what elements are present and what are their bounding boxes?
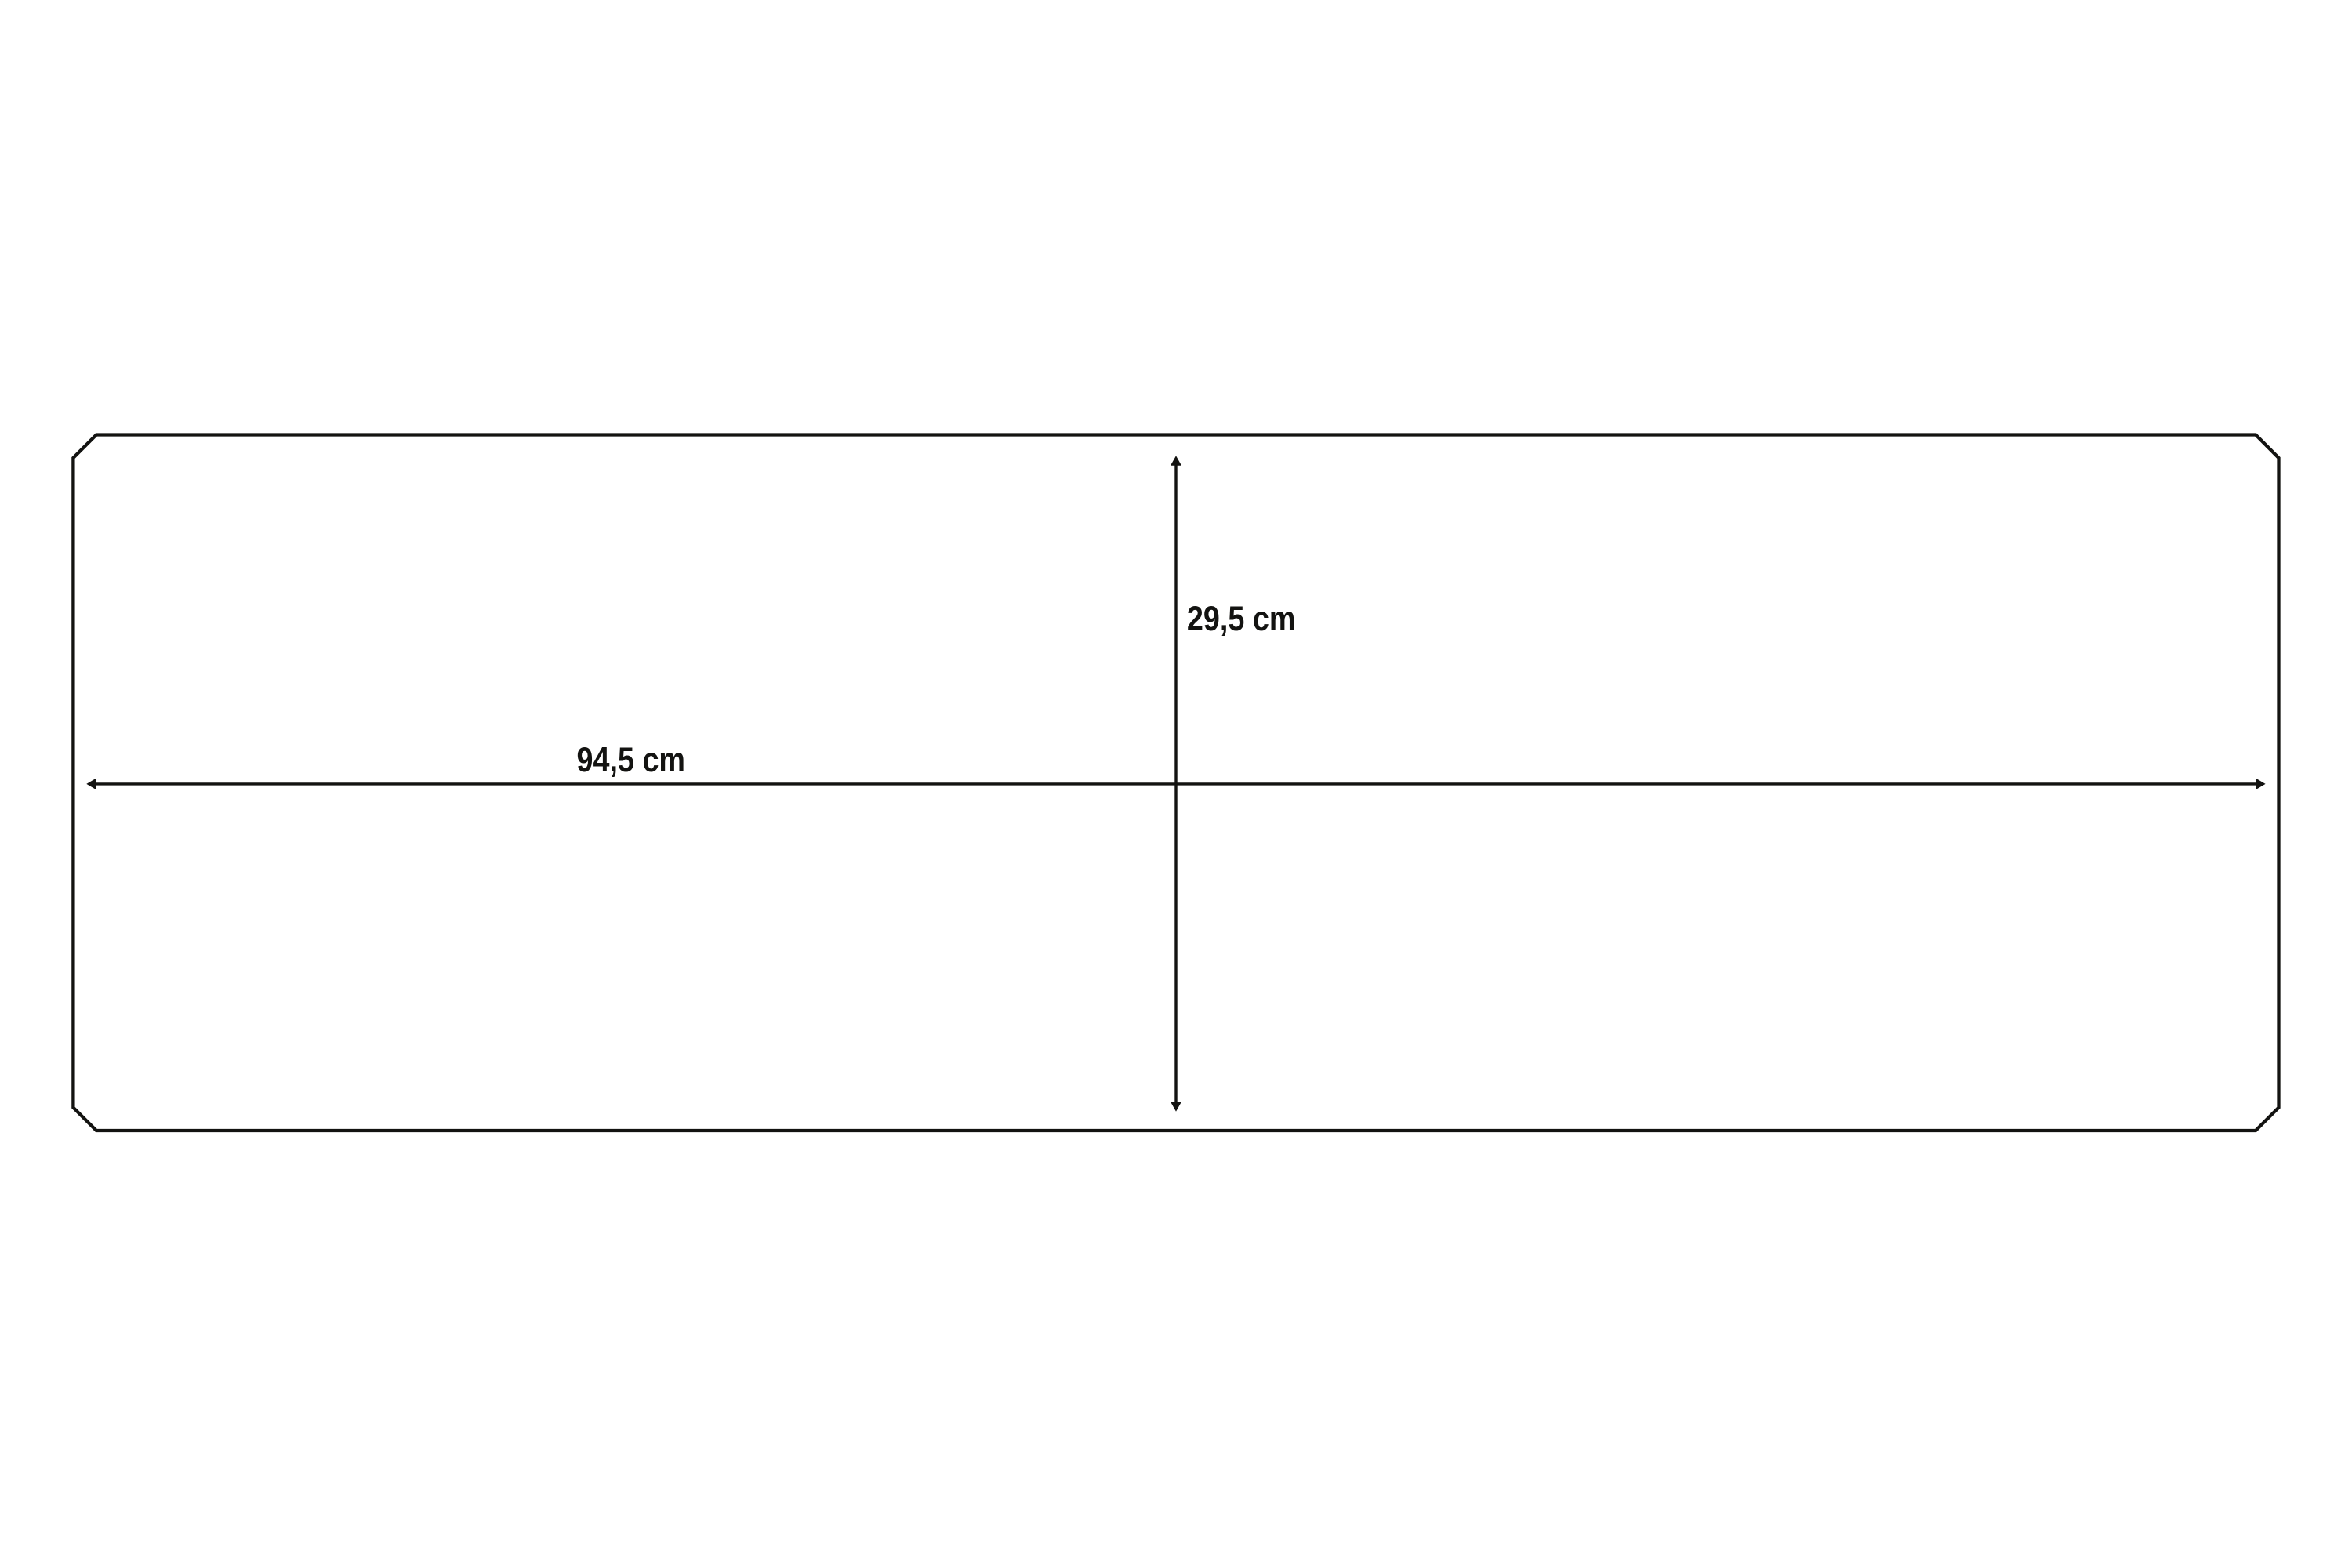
svg-text:29,5 cm: 29,5 cm bbox=[1187, 600, 1296, 638]
svg-text:94,5 cm: 94,5 cm bbox=[577, 741, 686, 779]
